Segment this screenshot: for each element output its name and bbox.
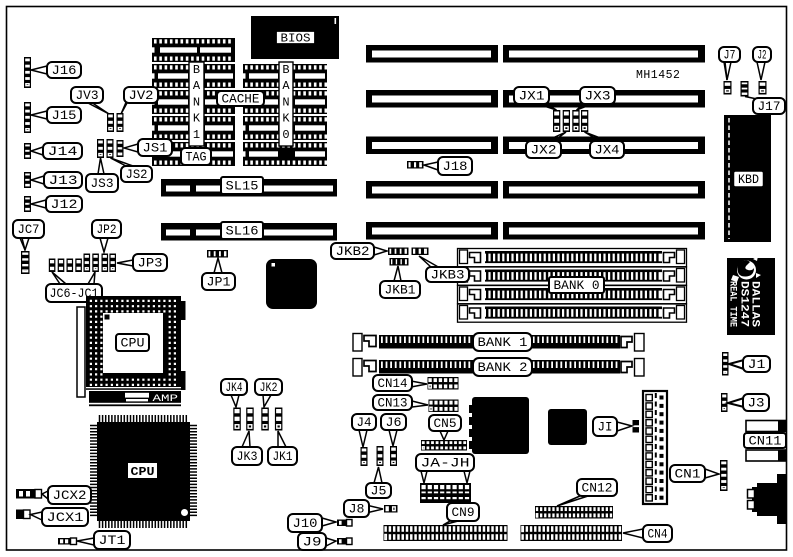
svg-text:J8: J8 <box>349 503 365 517</box>
svg-text:J3: J3 <box>748 397 765 411</box>
svg-text:J6: J6 <box>386 416 402 430</box>
svg-text:BIOS: BIOS <box>281 33 311 46</box>
svg-text:J5: J5 <box>371 485 387 499</box>
svg-text:SL15: SL15 <box>226 180 259 194</box>
svg-text:JCX1: JCX1 <box>47 511 84 525</box>
svg-text:J13: J13 <box>49 174 78 188</box>
svg-text:JX3: JX3 <box>585 90 611 104</box>
svg-text:CN9: CN9 <box>452 506 475 520</box>
svg-text:K: K <box>193 112 201 126</box>
svg-text:J12: J12 <box>51 198 78 212</box>
svg-text:J14: J14 <box>48 145 78 159</box>
svg-text:JK3: JK3 <box>237 450 258 464</box>
svg-text:J4: J4 <box>357 416 372 430</box>
svg-text:BANK 0: BANK 0 <box>554 279 600 293</box>
svg-text:K: K <box>282 112 290 126</box>
svg-text:B: B <box>282 63 289 77</box>
svg-text:CN1: CN1 <box>675 468 701 482</box>
svg-text:J18: J18 <box>443 160 468 174</box>
svg-text:JS2: JS2 <box>126 168 148 182</box>
svg-text:J7: J7 <box>724 49 736 63</box>
svg-text:SL16: SL16 <box>226 225 259 239</box>
svg-text:CPU: CPU <box>131 465 155 479</box>
svg-text:JKB2: JKB2 <box>336 245 370 259</box>
svg-text:JP3: JP3 <box>138 257 163 271</box>
svg-text:MH1452: MH1452 <box>636 69 680 82</box>
svg-text:J2: J2 <box>758 49 767 63</box>
svg-text:REAL TIME: REAL TIME <box>727 281 738 327</box>
svg-text:CN5: CN5 <box>434 417 457 431</box>
svg-text:AMP: AMP <box>153 393 179 405</box>
svg-text:JKB3: JKB3 <box>431 269 465 283</box>
svg-text:1: 1 <box>193 128 200 142</box>
svg-text:N: N <box>282 95 289 109</box>
svg-text:JX2: JX2 <box>531 144 557 158</box>
svg-text:JK4: JK4 <box>226 381 243 395</box>
svg-text:BANK 2: BANK 2 <box>478 360 528 375</box>
svg-text:J17: J17 <box>758 100 781 114</box>
svg-text:CACHE: CACHE <box>222 93 260 107</box>
svg-text:J16: J16 <box>52 64 77 78</box>
svg-text:DS1247: DS1247 <box>738 281 750 327</box>
svg-text:J9: J9 <box>303 536 322 550</box>
svg-text:CN12: CN12 <box>582 482 613 496</box>
svg-text:JC7: JC7 <box>18 223 40 237</box>
svg-text:N: N <box>193 95 200 109</box>
svg-text:JX4: JX4 <box>595 144 620 158</box>
svg-text:JKB1: JKB1 <box>385 284 416 298</box>
svg-text:CN11: CN11 <box>749 435 782 449</box>
svg-text:JA-JH: JA-JH <box>421 456 470 471</box>
svg-text:A: A <box>282 79 290 93</box>
svg-text:JV3: JV3 <box>76 89 99 103</box>
svg-text:J15: J15 <box>52 109 77 123</box>
svg-text:CN4: CN4 <box>648 528 668 542</box>
svg-text:TAG: TAG <box>186 151 207 165</box>
svg-text:KBD: KBD <box>738 173 759 187</box>
svg-text:A: A <box>193 79 201 93</box>
svg-text:JP1: JP1 <box>207 276 231 290</box>
svg-text:CPU: CPU <box>121 337 145 351</box>
svg-text:J10: J10 <box>293 517 318 531</box>
svg-text:JCX2: JCX2 <box>53 489 87 503</box>
svg-text:JS1: JS1 <box>143 142 168 156</box>
svg-text:JV2: JV2 <box>129 89 154 103</box>
svg-text:0: 0 <box>282 128 289 142</box>
svg-text:CN13: CN13 <box>378 397 408 411</box>
svg-text:B: B <box>193 63 200 77</box>
svg-text:CN14: CN14 <box>378 377 408 391</box>
svg-text:JK1: JK1 <box>273 450 293 464</box>
svg-text:JS3: JS3 <box>91 177 114 191</box>
svg-text:JX1: JX1 <box>519 90 545 104</box>
svg-text:JK2: JK2 <box>260 381 278 395</box>
svg-text:JI: JI <box>598 421 613 435</box>
svg-text:BANK 1: BANK 1 <box>478 335 528 350</box>
svg-text:JT1: JT1 <box>99 534 126 548</box>
svg-text:JP2: JP2 <box>97 223 117 237</box>
svg-text:J1: J1 <box>748 358 766 372</box>
